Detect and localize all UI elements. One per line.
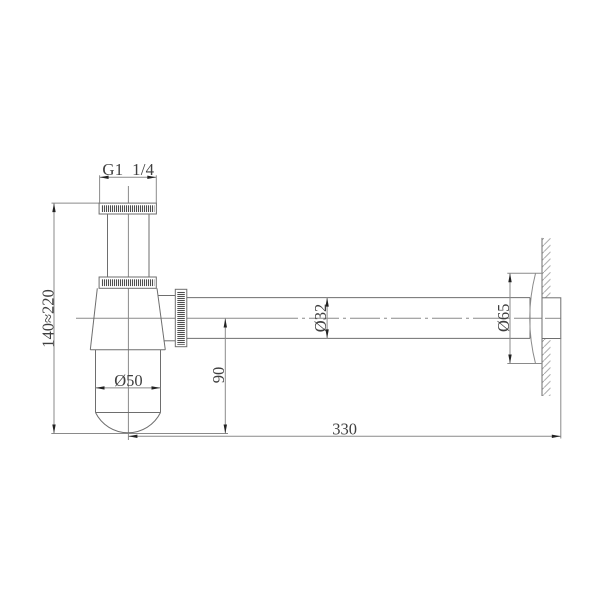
svg-text:90: 90 (209, 367, 228, 384)
svg-text:Ø32: Ø32 (311, 304, 330, 332)
svg-text:330: 330 (332, 419, 357, 438)
svg-text:Ø65: Ø65 (494, 304, 513, 332)
svg-text:140≈220: 140≈220 (38, 289, 57, 348)
svg-text:Ø50: Ø50 (114, 371, 142, 390)
svg-text:G1 1/4: G1 1/4 (102, 160, 154, 179)
